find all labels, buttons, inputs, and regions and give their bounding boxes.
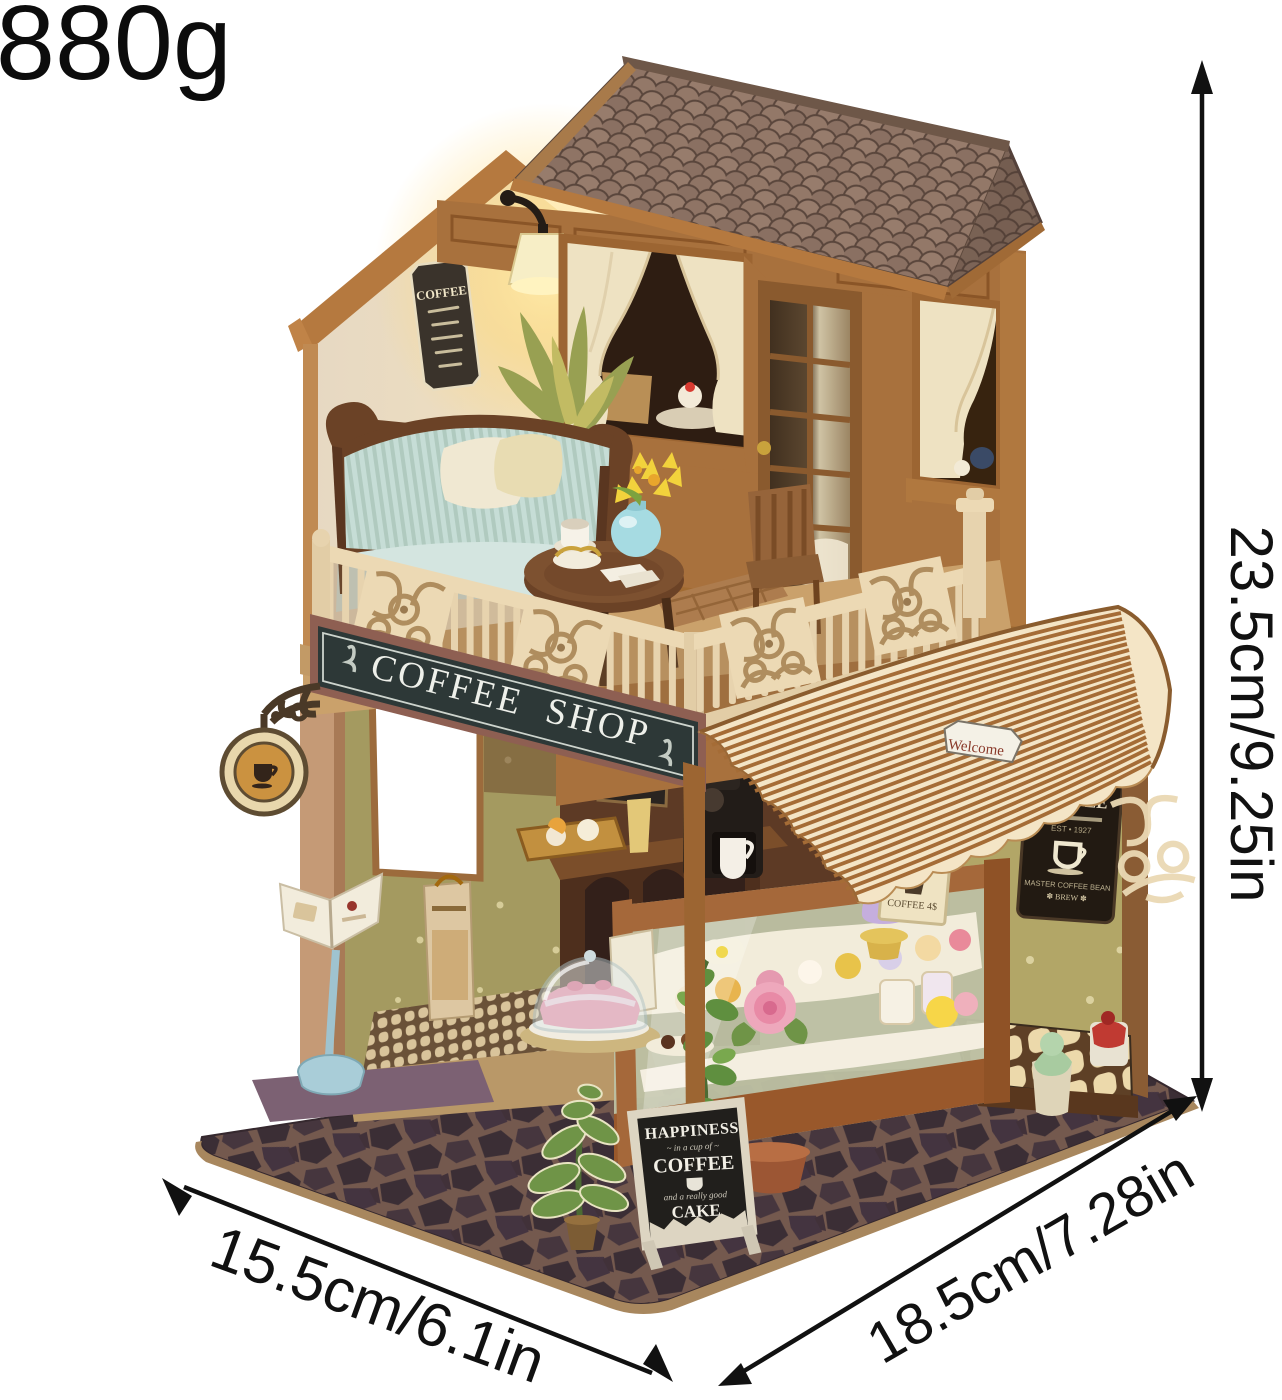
svg-text:23.5cm/9.25in: 23.5cm/9.25in [1218, 526, 1282, 903]
svg-text:COFFEE: COFFEE [653, 1152, 735, 1178]
svg-text:880g: 880g [0, 0, 232, 102]
